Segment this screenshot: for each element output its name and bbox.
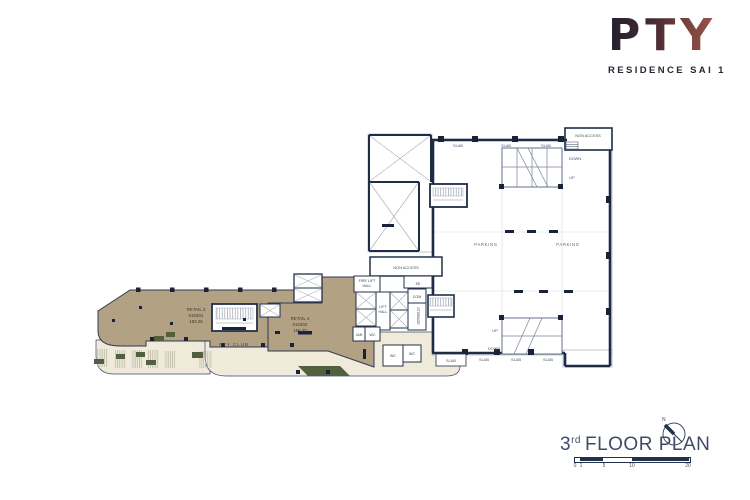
wc-label: WC: [370, 333, 376, 337]
down-label: DOWN: [488, 346, 501, 351]
retail3-unit: 010301: [189, 313, 204, 318]
scale-seg-1-5: [580, 457, 603, 461]
retail4-name: RETAIL 4: [291, 316, 310, 321]
scale-bar: 0 1 5 10 20: [574, 457, 691, 471]
scale-seg-10-20: [632, 457, 689, 461]
com-label: COM: [413, 295, 421, 299]
jan-label: JAN: [356, 333, 363, 337]
plan-title: 3rdFLOOR PLAN: [560, 434, 692, 456]
parking-area: [368, 128, 612, 367]
floor-plan-page: RETAIL 3 010301 183.25 RETAIL 4 010302 1…: [0, 0, 750, 500]
down-label: DOWN: [569, 156, 582, 161]
slab-label: SLAB: [501, 143, 511, 148]
logo-subtitle: RESIDENCE SAI 1: [608, 65, 728, 76]
wc-label: WC: [409, 352, 415, 356]
ee-label: EE: [416, 282, 421, 286]
wc-label: WC: [390, 354, 396, 358]
ramp-glyph: [566, 142, 578, 149]
floor-title: FLOOR PLAN: [585, 434, 710, 455]
parking-label-1: PARKING: [474, 242, 497, 247]
parking-label-2: PARKING: [556, 242, 579, 247]
north-letter: N: [662, 417, 666, 423]
floor-suffix: rd: [571, 435, 581, 446]
scale-label-5: 5: [603, 463, 606, 469]
non-access-label: NON ACCESS: [575, 133, 601, 138]
retail4-unit: 010302: [293, 322, 308, 327]
floor-number: 3: [560, 434, 571, 455]
slab-label: SLAB: [543, 357, 553, 362]
fire-lift-label2: HALL: [363, 284, 372, 288]
slab-label: SLAB: [446, 358, 456, 363]
pty-logo-mark: PTY: [608, 12, 718, 60]
fire-lift-label: FIRE LIFT: [359, 279, 376, 283]
ramp-lower: [502, 318, 562, 354]
scale-label-10: 10: [629, 463, 635, 469]
slab-label: SLAB: [541, 143, 551, 148]
slab-label: SLAB: [511, 357, 521, 362]
ramp-upper: [502, 148, 562, 187]
storage-label: STORAGE: [416, 307, 420, 325]
scale-label-20: 20: [685, 463, 691, 469]
slab-label: SLAB: [453, 143, 463, 148]
slab-label: SLAB: [479, 357, 489, 362]
pty-logo: PTY RESIDENCE SAI 1: [608, 12, 728, 76]
non-access-label: NON ACCESS: [393, 265, 419, 270]
lift-hall-label2: HALL: [379, 310, 388, 314]
scale-label-0: 0: [574, 463, 577, 469]
up-label: UP: [492, 328, 498, 333]
stair-upper: [430, 184, 467, 207]
pty-club-label: PTY CLUB: [219, 342, 249, 348]
logo-title: PTY: [608, 12, 717, 60]
retail3-area: 183.25: [189, 319, 203, 324]
retail4-area: 156.70: [293, 328, 307, 333]
lift-hall-label: LIFT: [379, 305, 387, 309]
retail4-upper-rooms: [294, 274, 322, 302]
scale-label-1: 1: [580, 463, 583, 469]
retail3-name: RETAIL 3: [187, 307, 206, 312]
up-label: UP: [569, 175, 575, 180]
